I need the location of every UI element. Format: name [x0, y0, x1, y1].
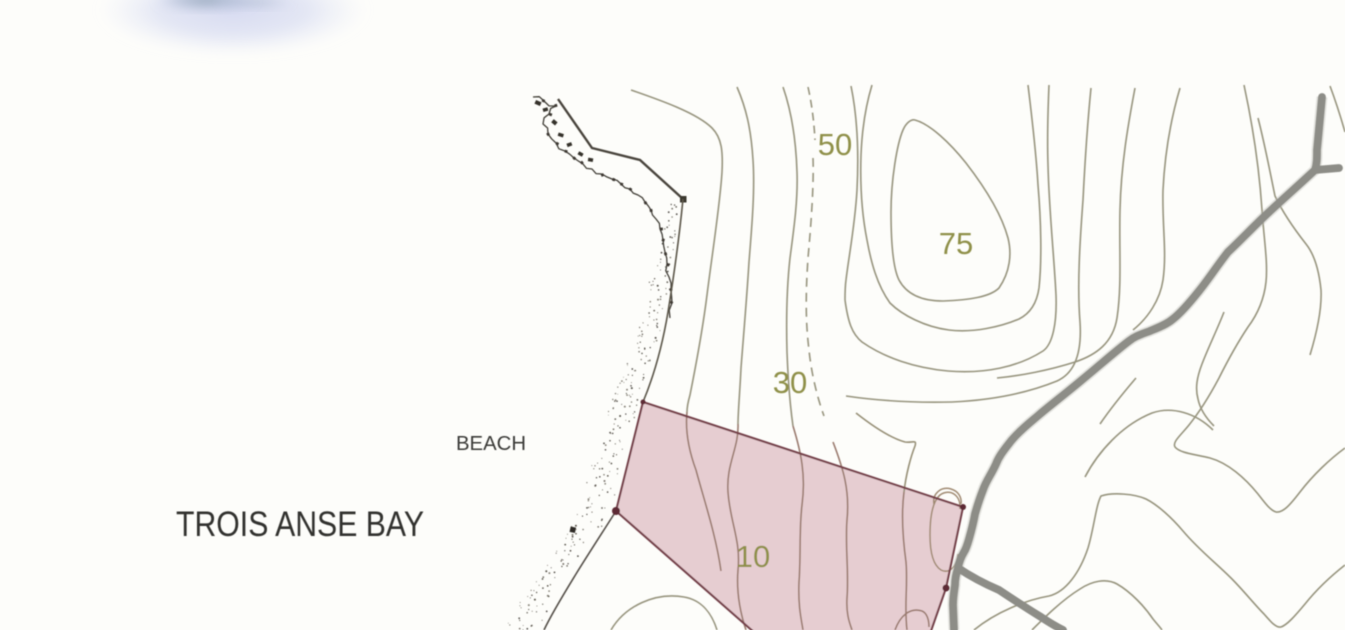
- svg-text:TROIS ANSE BAY: TROIS ANSE BAY: [176, 505, 424, 544]
- svg-text:30: 30: [773, 365, 807, 400]
- svg-text:75: 75: [939, 226, 973, 261]
- svg-text:50: 50: [818, 127, 852, 162]
- svg-text:10: 10: [736, 539, 770, 574]
- svg-text:BEACH: BEACH: [456, 433, 526, 455]
